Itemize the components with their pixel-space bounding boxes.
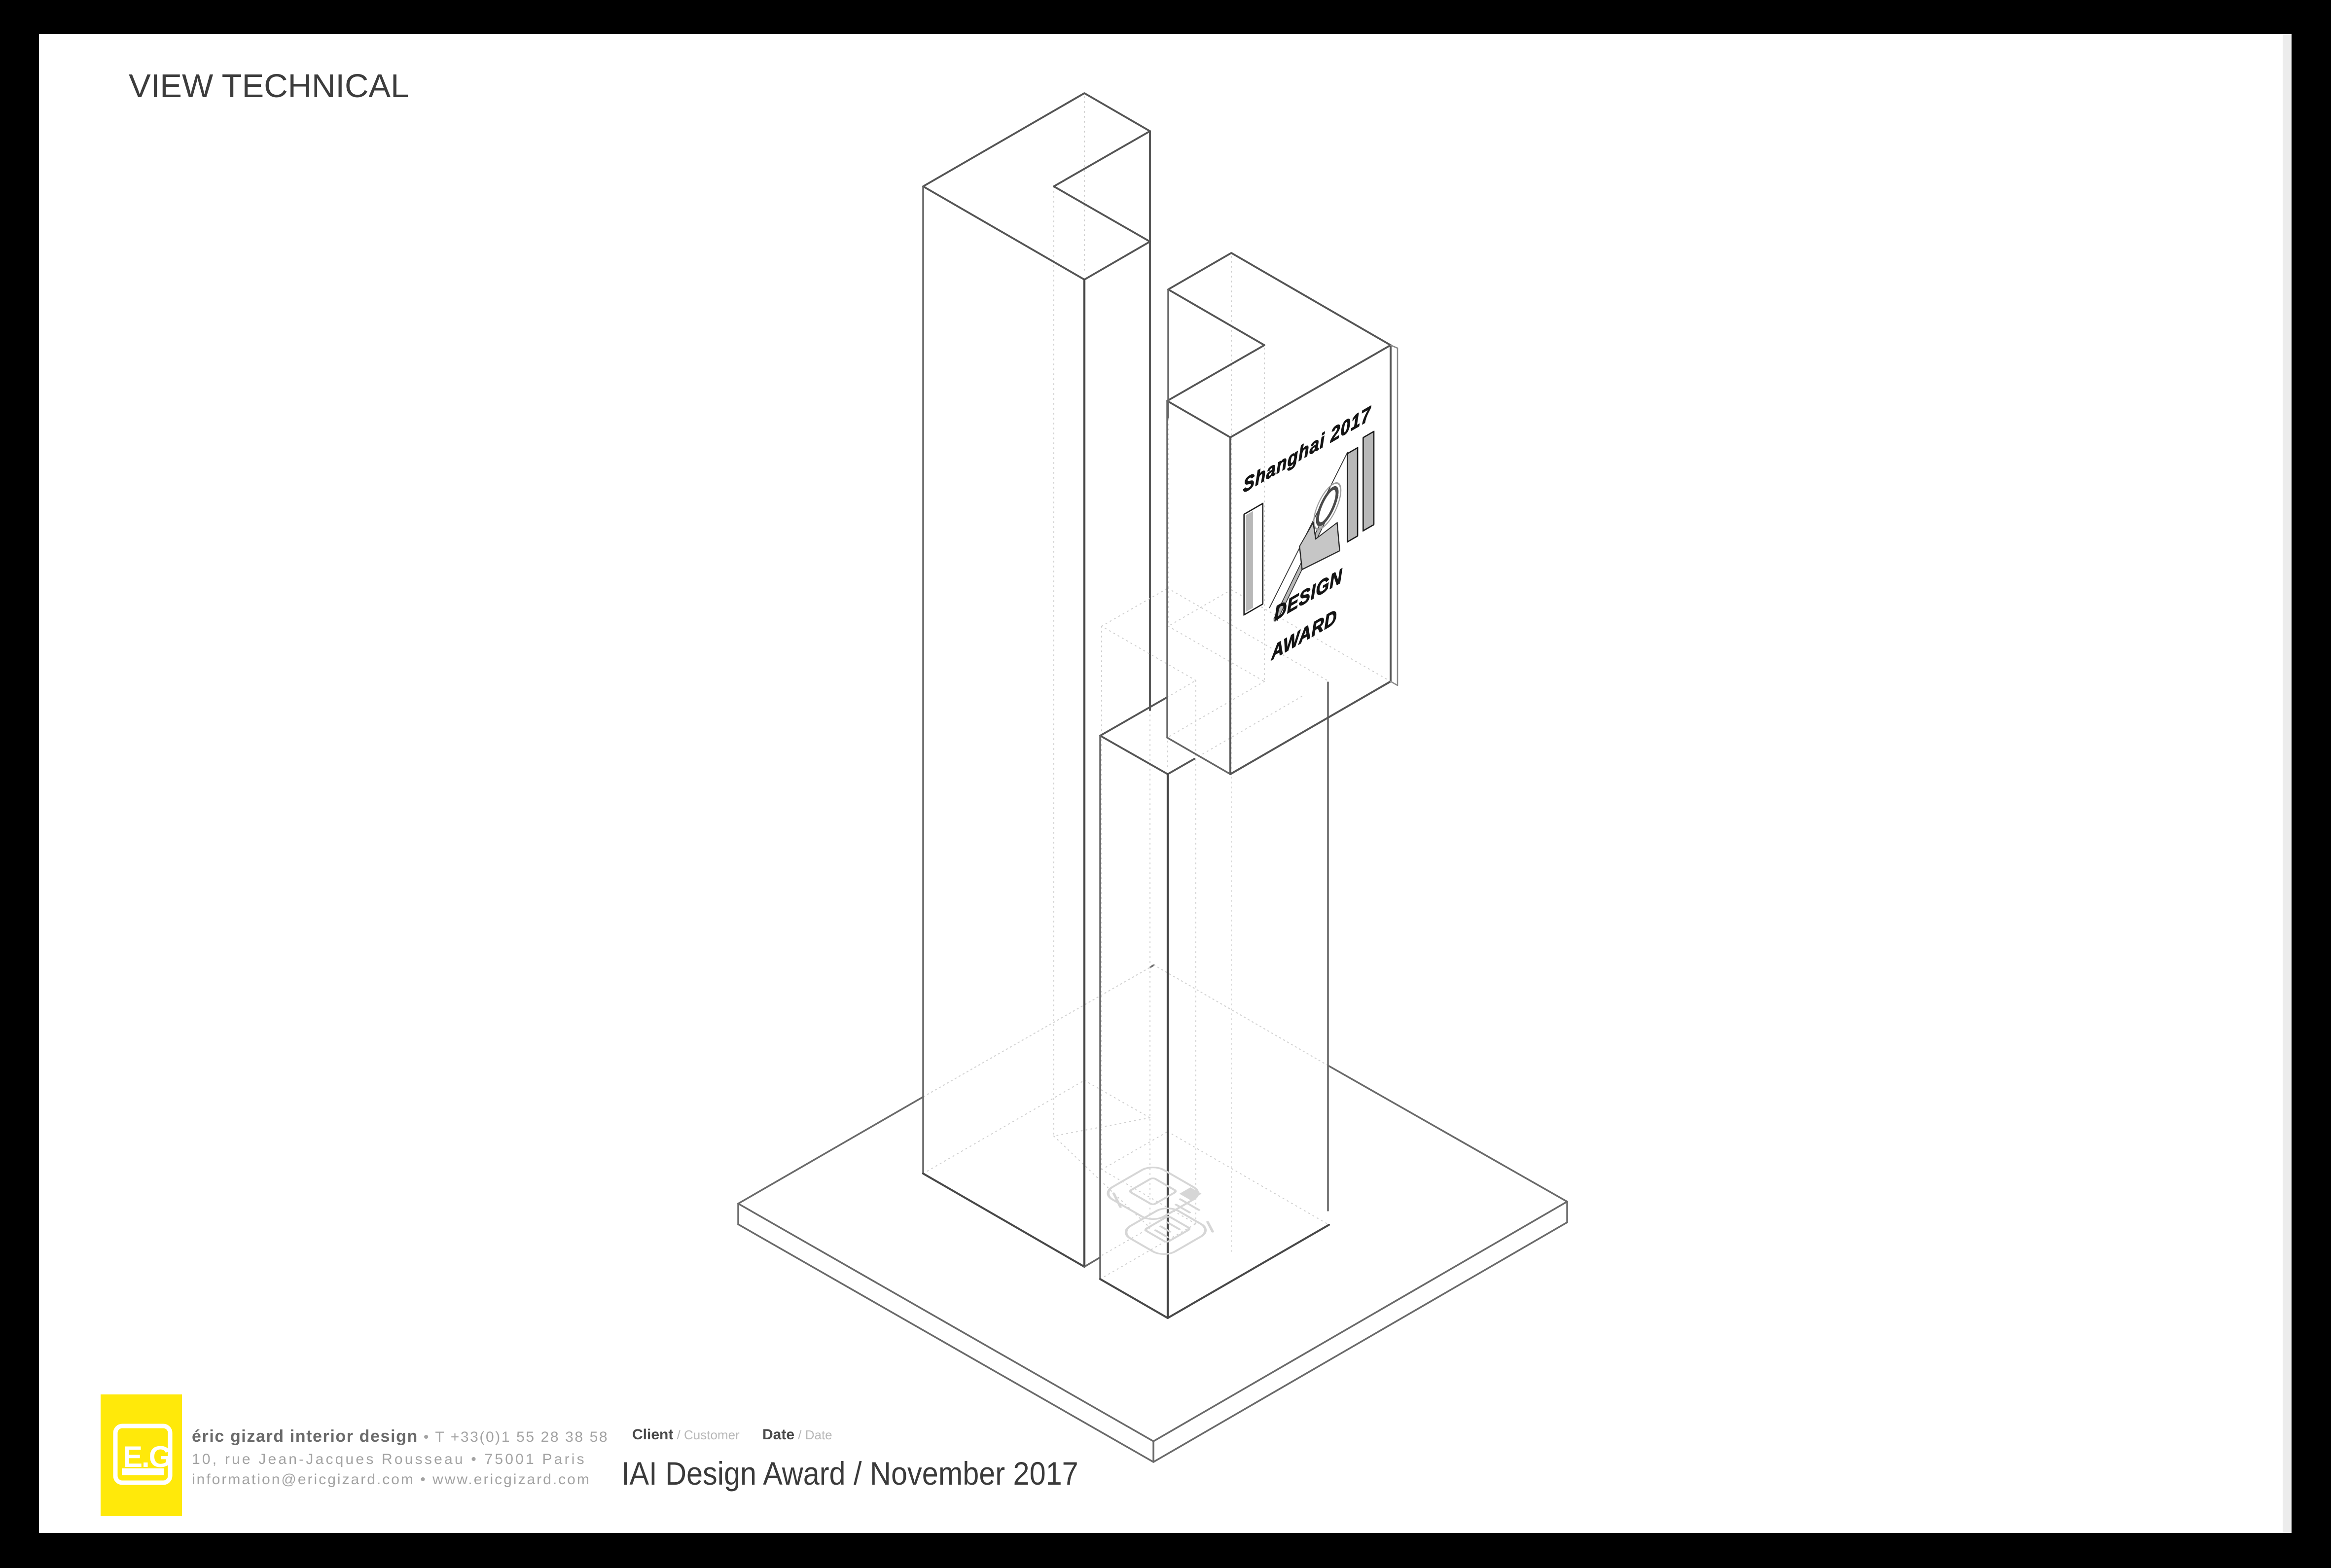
svg-text:E.G: E.G: [123, 1440, 171, 1473]
